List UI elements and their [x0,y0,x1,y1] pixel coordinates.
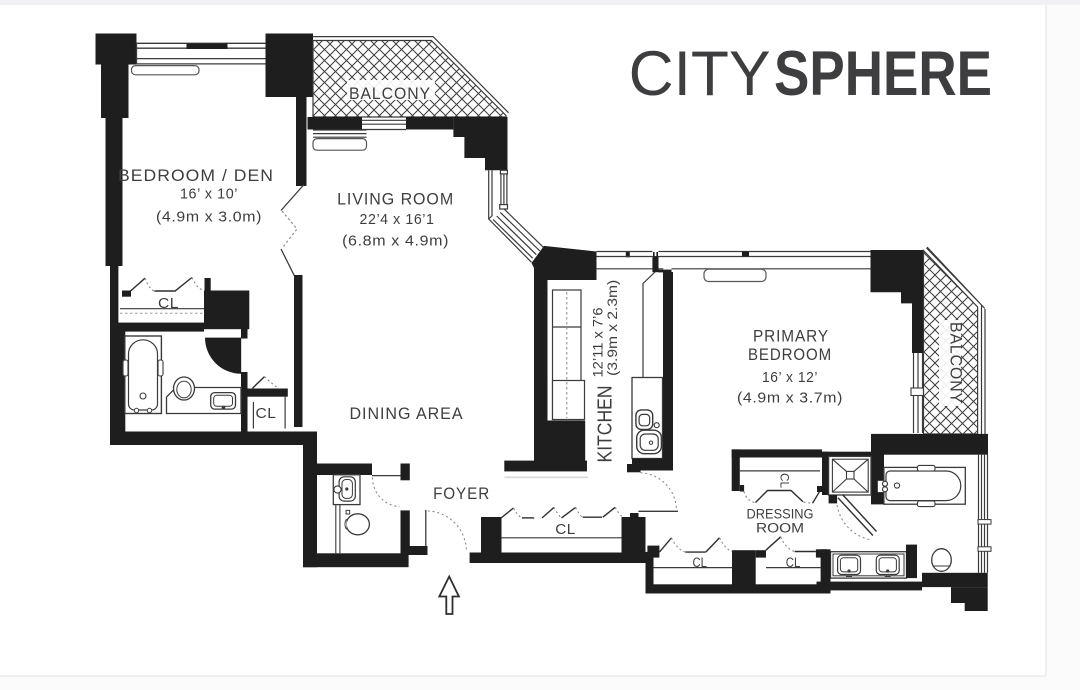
svg-text:16’ x 10’: 16’ x 10’ [180,186,238,203]
svg-text:CL: CL [555,522,576,538]
svg-text:KITCHEN: KITCHEN [594,386,617,463]
svg-text:DRESSING: DRESSING [747,507,814,522]
svg-text:DINING AREA: DINING AREA [350,404,464,423]
svg-text:ROOM: ROOM [756,521,804,536]
svg-text:BALCONY: BALCONY [349,84,431,103]
svg-text:BEDROOM / DEN: BEDROOM / DEN [118,166,274,185]
svg-text:CITY: CITY [629,39,771,109]
svg-text:SPHERE: SPHERE [774,39,992,109]
svg-text:(4.9m x 3.0m): (4.9m x 3.0m) [156,209,262,226]
svg-text:FOYER: FOYER [433,484,490,503]
svg-text:PRIMARY: PRIMARY [753,327,829,346]
svg-text:CL: CL [778,473,790,489]
svg-text:(4.9m x 3.7m): (4.9m x 3.7m) [737,390,843,407]
svg-text:22’4 x 16’1: 22’4 x 16’1 [360,211,435,228]
svg-text:CL: CL [256,406,277,422]
svg-text:(3.9m x 2.3m): (3.9m x 2.3m) [605,280,620,376]
svg-text:16’ x 12’: 16’ x 12’ [762,369,818,386]
svg-text:(6.8m x 4.9m): (6.8m x 4.9m) [342,233,449,250]
svg-text:BEDROOM: BEDROOM [748,345,832,364]
svg-text:BALCONY: BALCONY [947,322,966,404]
svg-text:LIVING ROOM: LIVING ROOM [337,190,454,209]
svg-text:CL: CL [158,296,179,312]
svg-text:12’11 x 7’6: 12’11 x 7’6 [590,308,605,378]
